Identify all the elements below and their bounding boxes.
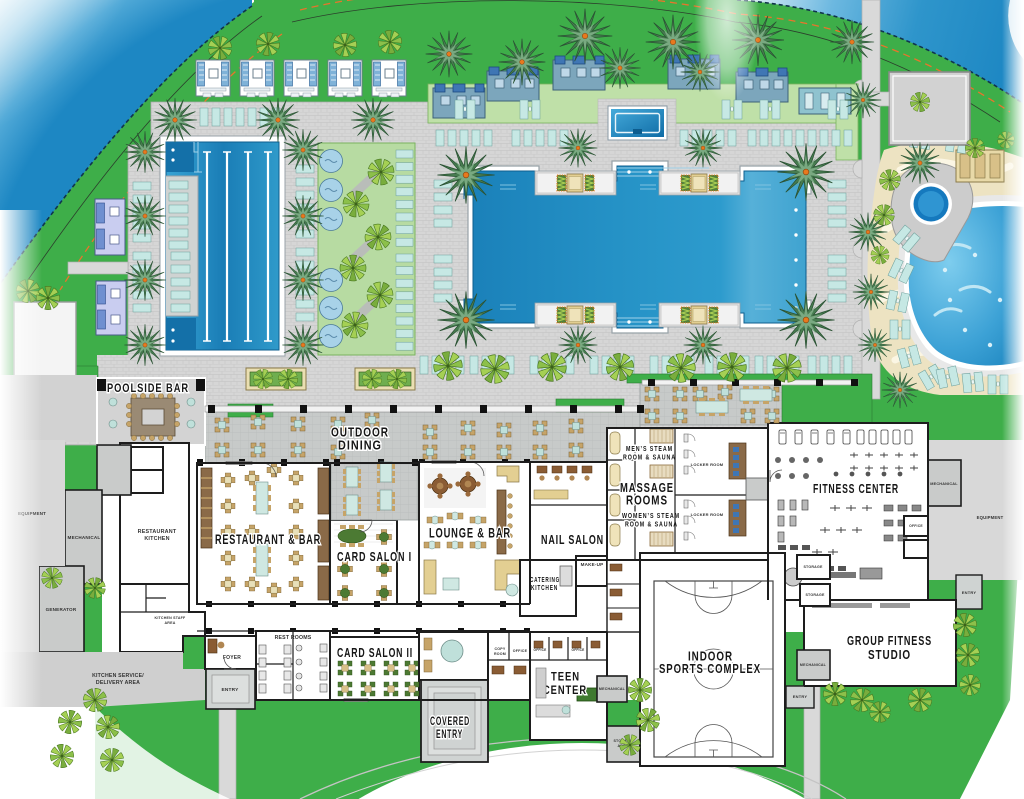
svg-text:NAIL SALON: NAIL SALON xyxy=(541,532,604,547)
svg-text:ROOM: ROOM xyxy=(494,652,506,656)
svg-text:REST ROOMS: REST ROOMS xyxy=(275,635,312,641)
svg-text:FOYER: FOYER xyxy=(223,655,241,661)
svg-text:AREA: AREA xyxy=(165,621,176,625)
svg-text:DELIVERY AREA: DELIVERY AREA xyxy=(96,680,140,686)
svg-text:LOUNGE & BAR: LOUNGE & BAR xyxy=(429,526,511,541)
svg-text:ENTRY: ENTRY xyxy=(436,729,463,741)
svg-text:KITCHEN: KITCHEN xyxy=(531,583,558,592)
svg-text:STORAGE: STORAGE xyxy=(803,565,823,569)
svg-text:OFFICE: OFFICE xyxy=(572,648,585,652)
svg-text:ROOM & SAUNA: ROOM & SAUNA xyxy=(623,455,676,462)
svg-text:WOMEN’S STEAM: WOMEN’S STEAM xyxy=(622,513,680,520)
svg-text:ENTRY: ENTRY xyxy=(793,694,808,699)
svg-text:CENTER: CENTER xyxy=(543,683,587,697)
svg-text:MECHANICAL: MECHANICAL xyxy=(599,687,626,691)
svg-text:EQUIPMENT: EQUIPMENT xyxy=(977,515,1004,520)
svg-text:ENTRY: ENTRY xyxy=(962,590,977,595)
svg-text:RESTAURANT & BAR: RESTAURANT & BAR xyxy=(215,532,321,547)
svg-text:CARD SALON I: CARD SALON I xyxy=(337,549,412,564)
svg-text:LOCKER ROOM: LOCKER ROOM xyxy=(691,462,724,467)
svg-text:DINING: DINING xyxy=(338,438,382,453)
svg-text:MAKE-UP: MAKE-UP xyxy=(581,562,604,567)
svg-text:COVERED: COVERED xyxy=(430,716,470,728)
svg-text:MECHANICAL: MECHANICAL xyxy=(930,482,958,486)
svg-text:KITCHEN SERVICE/: KITCHEN SERVICE/ xyxy=(92,673,144,679)
svg-text:MECHANICAL: MECHANICAL xyxy=(800,663,827,667)
svg-text:OFFICE: OFFICE xyxy=(534,648,547,652)
svg-text:TEEN: TEEN xyxy=(551,670,580,684)
svg-text:POOLSIDE BAR: POOLSIDE BAR xyxy=(107,381,189,395)
svg-text:LOCKER ROOM: LOCKER ROOM xyxy=(691,512,724,517)
svg-text:OFFICE: OFFICE xyxy=(909,524,923,528)
svg-text:KITCHEN: KITCHEN xyxy=(144,536,169,542)
svg-text:GENERATOR: GENERATOR xyxy=(46,607,77,612)
svg-text:SPORTS COMPLEX: SPORTS COMPLEX xyxy=(659,662,761,676)
svg-text:KITCHEN STAFF: KITCHEN STAFF xyxy=(155,616,186,620)
svg-text:STUDIO: STUDIO xyxy=(868,647,911,662)
svg-text:COPY: COPY xyxy=(495,647,506,651)
svg-text:CARD SALON II: CARD SALON II xyxy=(337,645,413,660)
svg-text:OFFICE: OFFICE xyxy=(513,649,528,653)
svg-text:RESTAURANT: RESTAURANT xyxy=(138,529,177,535)
svg-text:ROOMS: ROOMS xyxy=(626,494,668,508)
svg-text:MECHANICAL: MECHANICAL xyxy=(68,535,101,540)
svg-text:ENTRY: ENTRY xyxy=(221,687,239,693)
svg-text:MEN’S STEAM: MEN’S STEAM xyxy=(626,446,673,453)
svg-text:ROOM & SAUNA: ROOM & SAUNA xyxy=(625,522,678,529)
svg-text:GROUP FITNESS: GROUP FITNESS xyxy=(847,633,932,648)
svg-text:FITNESS CENTER: FITNESS CENTER xyxy=(813,481,899,496)
svg-text:STORAGE: STORAGE xyxy=(805,593,825,597)
